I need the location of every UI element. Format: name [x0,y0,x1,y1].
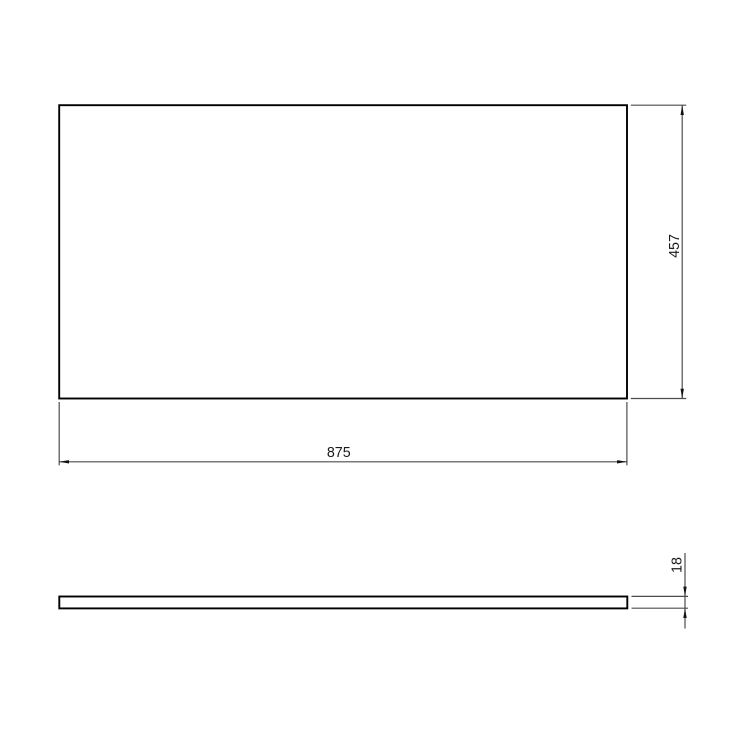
svg-text:457: 457 [667,234,683,258]
svg-text:875: 875 [327,445,351,461]
svg-text:18: 18 [670,557,686,573]
